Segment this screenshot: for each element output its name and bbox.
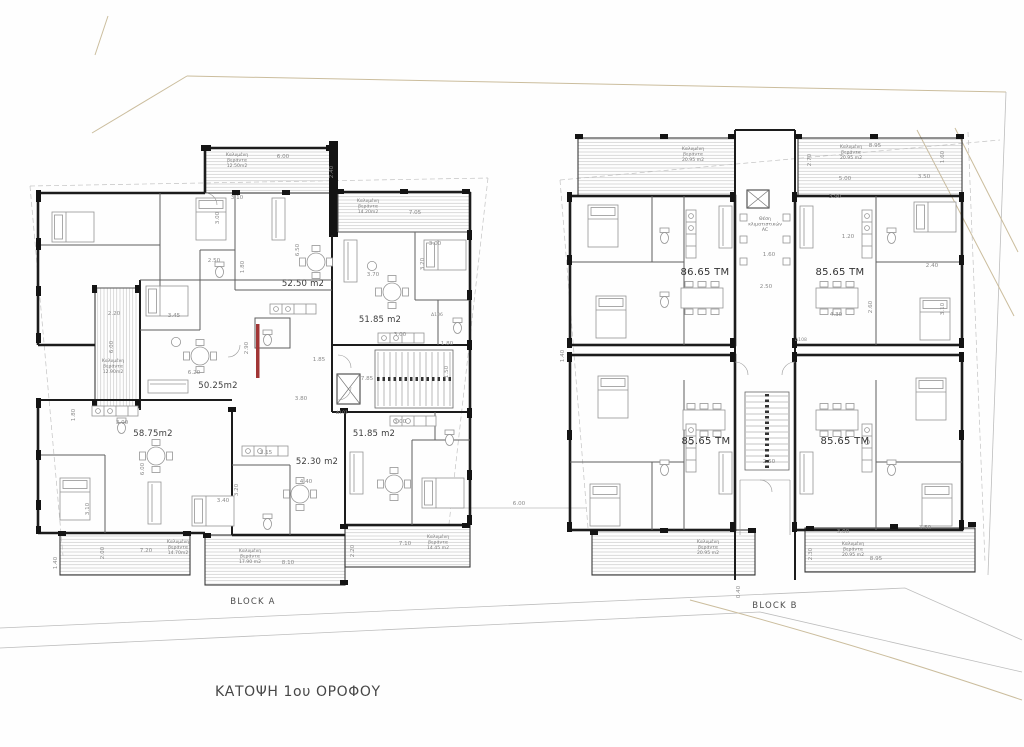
- dim-label: 1.80: [71, 408, 77, 421]
- apartment-area-label: 51.85 m2: [353, 429, 395, 439]
- veranda-label: Καλυμένηβεράντα20.95 m2: [682, 145, 704, 163]
- block-b-plan: [567, 130, 976, 580]
- dim-label: 3.00: [394, 332, 407, 338]
- apartment-area-label: 52.30 m2: [296, 457, 338, 467]
- dim-label: 4.40: [300, 479, 313, 485]
- veranda-label: Καλυμένηβεράντα12.50m2: [226, 151, 248, 169]
- block-a-label: BLOCK A: [230, 597, 275, 607]
- dim-label: 2.00: [100, 546, 106, 559]
- dim-label: 2.50: [763, 459, 776, 465]
- dim-label: 3.00: [394, 419, 407, 425]
- apartment-area-label: 51.85 m2: [359, 315, 401, 325]
- apartment-area-label: 85.65 TM: [682, 436, 731, 447]
- floor-plan-canvas: 52.50 m251.85 m250.25m258.75m252.30 m251…: [0, 0, 1024, 747]
- veranda-label: Καλυμένηβεράντα20.95 m2: [840, 143, 862, 161]
- veranda-label: Καλυμένηβεράντα14.70m2: [167, 538, 189, 556]
- dim-label: 8.10: [282, 560, 295, 566]
- dim-label: 1.85: [313, 357, 326, 363]
- veranda-label: Καλυμένηβεράντα17.90 m2: [239, 547, 261, 565]
- dim-label: 3.80: [295, 396, 308, 402]
- dim-label: 3.10: [231, 195, 244, 201]
- dim-label: 7.85: [361, 376, 374, 382]
- dim-label: 4.30: [830, 312, 843, 318]
- site-boundary-lines: [0, 16, 1022, 700]
- dim-label: 3.10: [85, 502, 91, 515]
- dim-label: 1.40: [53, 556, 59, 569]
- dim-label: 2.20: [108, 311, 121, 317]
- block-b-core: [735, 190, 795, 492]
- dim-label: 1.60: [940, 150, 946, 163]
- apartment-area-label: 50.25m2: [198, 381, 237, 391]
- block-b-furniture: [588, 202, 956, 526]
- dim-label: 1.60: [763, 252, 776, 258]
- dim-label: 7.10: [399, 541, 412, 547]
- dim-label: 2.40: [329, 165, 335, 178]
- veranda-label: Καλυμένηβεράντα20.95 m2: [697, 538, 719, 556]
- dim-label: 7.20: [140, 548, 153, 554]
- dim-label: 2.50: [208, 258, 221, 264]
- drawing-title: ΚΑΤΟΨΗ 1ου ΟΡΟΦΟΥ: [215, 684, 381, 700]
- block-a-stairs-icon: [375, 350, 453, 408]
- dim-label: 1.50: [444, 365, 450, 378]
- dim-label: 3.00: [429, 241, 442, 247]
- dim-label: 2.40: [926, 263, 939, 269]
- dim-label: 8.95: [869, 143, 882, 149]
- dim-label: 6.20: [188, 370, 201, 376]
- dim-label: 3.50: [919, 525, 932, 531]
- dim-label: 2.60: [868, 300, 874, 313]
- dim-label: 3.10: [940, 302, 946, 315]
- veranda-label: Καλυμένηβεράντα20.95 m2: [842, 540, 864, 558]
- dim-label: 6.00: [109, 340, 115, 353]
- dim-label: 2.50: [760, 284, 773, 290]
- veranda-label: Καλυμένηβεράντα14.20m2: [357, 197, 379, 215]
- dim-label: 6.50: [295, 243, 301, 256]
- dim-label: 3.00: [215, 211, 221, 224]
- dim-label: 3.50: [918, 174, 931, 180]
- dim-label: 2.70: [807, 153, 813, 166]
- dim-label: 1.80: [441, 341, 454, 347]
- apartment-area-label: 85.65 TM: [821, 436, 870, 447]
- block-b-label: BLOCK B: [752, 601, 797, 611]
- section-marker: [256, 324, 260, 378]
- dim-label: 3.40: [217, 498, 230, 504]
- dim-label: 1.40: [560, 349, 566, 362]
- dim-label: 3.45: [168, 313, 181, 319]
- dim-label: 2.30: [808, 547, 814, 560]
- ac-position-label: ΘέσηκλιματιστικώνAC: [748, 215, 782, 233]
- veranda-label: Καλυμένηβεράντα12.90m2: [102, 357, 124, 375]
- dim-label: 6.00: [513, 501, 526, 507]
- dim-label: 2.90: [244, 341, 250, 354]
- apartment-area-label: 86.65 TM: [681, 267, 730, 278]
- unit-tag: Δ108: [795, 337, 807, 343]
- dim-label: 6.00: [277, 154, 290, 160]
- dim-label: 3.20: [234, 483, 240, 496]
- dim-label: 0.40: [736, 585, 742, 598]
- dim-label: 3.20: [420, 257, 426, 270]
- dim-label: 7.05: [409, 210, 422, 216]
- dim-label: 5.00: [839, 176, 852, 182]
- dim-label: 3.15: [260, 450, 273, 456]
- unit-tag: Δ101: [336, 410, 348, 416]
- dim-label: 1.80: [240, 260, 246, 273]
- dim-label: 3.90: [829, 194, 842, 200]
- unit-tag: Δ106: [431, 312, 443, 318]
- apartment-area-label: 52.50 m2: [282, 279, 324, 289]
- dim-label: 3.00: [116, 420, 129, 426]
- dim-label: 3.00: [837, 529, 850, 535]
- dim-label: 2.20: [350, 544, 356, 557]
- dim-label: 6.00: [140, 462, 146, 475]
- apartment-area-label: 85.65 TM: [816, 267, 865, 278]
- floor-plan-drawing: 52.50 m251.85 m250.25m258.75m252.30 m251…: [0, 0, 1024, 747]
- veranda-label: Καλυμένηβεράντα14.45 m2: [427, 533, 449, 551]
- dim-label: 8.95: [870, 556, 883, 562]
- dim-label: 3.70: [367, 272, 380, 278]
- apartment-area-label: 58.75m2: [133, 429, 172, 439]
- dim-label: 1.20: [842, 234, 855, 240]
